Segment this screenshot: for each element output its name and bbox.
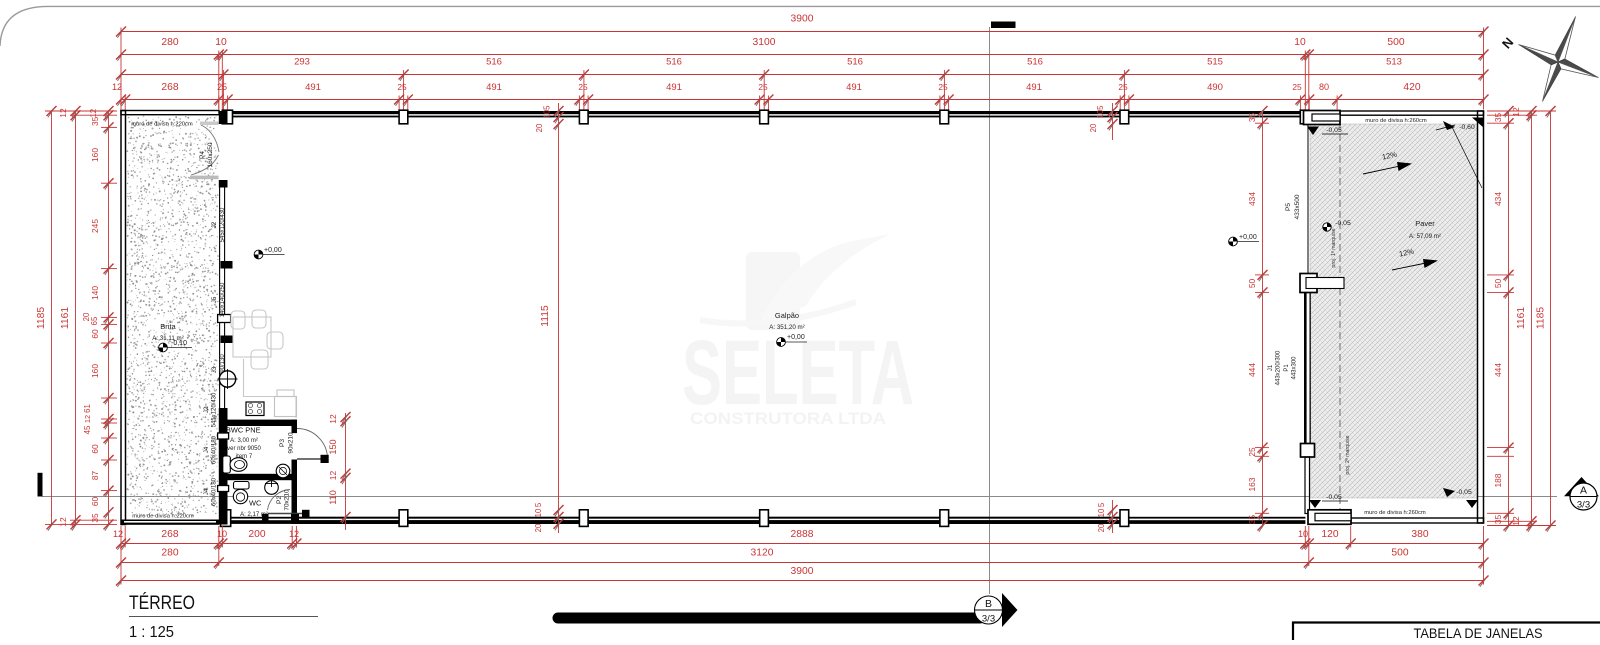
- svg-text:516: 516: [847, 57, 863, 68]
- svg-text:Paver: Paver: [1415, 219, 1435, 228]
- svg-text:60x40/180: 60x40/180: [212, 435, 218, 464]
- svg-text:420: 420: [1403, 82, 1420, 93]
- svg-text:Brita: Brita: [160, 322, 176, 331]
- svg-text:25: 25: [1292, 82, 1302, 92]
- svg-text:60: 60: [90, 329, 100, 339]
- svg-text:20: 20: [1097, 523, 1106, 532]
- svg-text:160: 160: [90, 364, 100, 378]
- svg-text:160: 160: [90, 148, 100, 162]
- svg-text:WC: WC: [249, 499, 262, 508]
- svg-text:87: 87: [90, 471, 100, 481]
- svg-text:1115: 1115: [540, 305, 551, 327]
- svg-text:280: 280: [161, 37, 178, 48]
- svg-text:433x500: 433x500: [1294, 194, 1301, 219]
- svg-text:10: 10: [1097, 508, 1106, 517]
- svg-text:200: 200: [248, 529, 265, 540]
- svg-text:P1: P1: [1284, 364, 1290, 372]
- svg-text:65: 65: [90, 316, 99, 325]
- svg-text:163: 163: [1247, 477, 1257, 491]
- svg-text:TÉRREO: TÉRREO: [129, 593, 195, 614]
- svg-text:muro de divisa h:260cm: muro de divisa h:260cm: [1365, 118, 1427, 124]
- svg-text:90x210: 90x210: [288, 432, 295, 454]
- svg-text:12: 12: [328, 414, 338, 424]
- svg-text:140: 140: [90, 286, 100, 300]
- svg-text:A: 351,20 m²: A: 351,20 m²: [769, 324, 804, 331]
- svg-text:516: 516: [666, 57, 682, 68]
- svg-text:A: 3,00 m²: A: 3,00 m²: [230, 438, 258, 444]
- svg-text:515: 515: [1207, 57, 1223, 68]
- svg-text:3900: 3900: [791, 566, 814, 577]
- svg-text:10: 10: [1294, 37, 1306, 48]
- svg-text:491: 491: [305, 82, 321, 93]
- svg-text:80: 80: [1319, 82, 1329, 92]
- svg-text:35: 35: [1247, 113, 1257, 123]
- svg-text:434: 434: [1493, 192, 1503, 206]
- svg-text:25: 25: [758, 82, 768, 92]
- svg-text:500: 500: [1391, 548, 1408, 559]
- svg-text:12: 12: [113, 529, 123, 539]
- svg-text:25: 25: [1247, 447, 1257, 457]
- svg-text:500: 500: [1387, 37, 1404, 48]
- svg-text:12: 12: [58, 517, 68, 527]
- svg-text:A: 57,09 m²: A: 57,09 m²: [1409, 233, 1441, 240]
- svg-text:1161: 1161: [1516, 307, 1527, 329]
- svg-text:J2: J2: [212, 221, 218, 228]
- svg-text:-0,05: -0,05: [1326, 127, 1342, 134]
- svg-text:CONSTRUTORA LTDA: CONSTRUTORA LTDA: [690, 409, 886, 428]
- svg-text:61: 61: [83, 404, 92, 413]
- svg-text:35: 35: [1493, 113, 1503, 123]
- svg-text:491: 491: [846, 82, 862, 93]
- svg-text:ver nbr 9050: ver nbr 9050: [227, 446, 261, 452]
- svg-text:490: 490: [1207, 82, 1223, 93]
- svg-text:1185: 1185: [36, 307, 47, 329]
- svg-text:45: 45: [83, 425, 92, 434]
- svg-text:3120: 3120: [751, 548, 774, 559]
- svg-text:A: A: [1580, 485, 1587, 497]
- svg-text:60x40/180: 60x40/180: [212, 477, 218, 506]
- svg-text:50: 50: [1493, 279, 1503, 289]
- svg-text:35: 35: [1493, 515, 1503, 525]
- svg-text:268: 268: [161, 529, 178, 540]
- svg-text:35: 35: [90, 116, 100, 126]
- svg-text:491: 491: [1026, 82, 1042, 93]
- svg-text:12: 12: [289, 529, 299, 539]
- svg-text:+0,00: +0,00: [787, 334, 805, 341]
- svg-text:380: 380: [1411, 529, 1428, 540]
- svg-text:140x140/250: 140x140/250: [220, 282, 226, 317]
- svg-text:50: 50: [1247, 279, 1257, 289]
- svg-text:25: 25: [397, 82, 407, 92]
- svg-text:2888: 2888: [791, 529, 814, 540]
- svg-text:443x200/300: 443x200/300: [1276, 350, 1282, 385]
- svg-text:P4: P4: [199, 151, 206, 159]
- svg-text:20: 20: [534, 523, 543, 532]
- svg-text:35: 35: [90, 513, 100, 523]
- svg-text:Galpão: Galpão: [775, 311, 799, 320]
- svg-text:J2: J2: [204, 406, 210, 413]
- svg-text:1185: 1185: [1536, 307, 1547, 329]
- svg-text:P2: P2: [276, 496, 283, 504]
- svg-text:491: 491: [666, 82, 682, 93]
- svg-text:P5: P5: [1285, 203, 1292, 211]
- svg-text:70x210: 70x210: [284, 489, 291, 511]
- svg-text:3/3: 3/3: [1577, 500, 1590, 511]
- svg-text:1161: 1161: [60, 307, 71, 329]
- svg-text:muro de divisa h:220cm: muro de divisa h:220cm: [131, 122, 193, 128]
- svg-text:3900: 3900: [791, 14, 814, 25]
- svg-text:120: 120: [1321, 529, 1338, 540]
- svg-text:J1: J1: [1268, 364, 1274, 371]
- svg-text:245: 245: [90, 219, 100, 233]
- svg-text:12: 12: [112, 82, 122, 92]
- svg-text:105: 105: [1096, 105, 1105, 119]
- svg-text:443x300: 443x300: [1292, 356, 1298, 380]
- svg-text:10: 10: [534, 508, 543, 517]
- svg-text:TABELA DE JANELAS: TABELA DE JANELAS: [1414, 626, 1543, 640]
- svg-text:10: 10: [215, 37, 227, 48]
- svg-text:12: 12: [89, 109, 98, 118]
- svg-text:434: 434: [1247, 192, 1257, 206]
- svg-text:muro de divisa h:220cm: muro de divisa h:220cm: [132, 514, 194, 520]
- svg-text:150: 150: [328, 439, 338, 454]
- svg-text:444: 444: [1247, 363, 1257, 377]
- svg-text:25: 25: [938, 82, 948, 92]
- svg-text:proj. 1ª marquise: proj. 1ª marquise: [1331, 228, 1337, 267]
- svg-text:J3: J3: [212, 366, 218, 373]
- svg-text:3/3: 3/3: [982, 614, 995, 625]
- svg-text:60: 60: [90, 497, 100, 507]
- svg-text:-0,05: -0,05: [1326, 494, 1342, 501]
- svg-text:12: 12: [328, 471, 338, 481]
- svg-text:293: 293: [294, 57, 310, 68]
- svg-text:545x120/430: 545x120/430: [212, 392, 218, 427]
- svg-text:P3: P3: [279, 439, 286, 447]
- svg-text:516: 516: [1027, 57, 1043, 68]
- svg-text:10: 10: [1298, 529, 1308, 539]
- svg-text:513: 513: [1386, 57, 1402, 68]
- svg-text:110: 110: [328, 490, 338, 505]
- svg-text:516: 516: [486, 57, 502, 68]
- svg-text:444: 444: [1493, 363, 1503, 377]
- svg-text:BWC PNE: BWC PNE: [226, 426, 261, 435]
- svg-text:160x250: 160x250: [207, 142, 214, 167]
- svg-text:5: 5: [1097, 502, 1106, 507]
- svg-text:25: 25: [1118, 82, 1128, 92]
- svg-text:5: 5: [534, 502, 543, 507]
- svg-text:545x120/430: 545x120/430: [220, 207, 226, 242]
- svg-text:491: 491: [486, 82, 502, 93]
- svg-text:muro de divisa h:260cm: muro de divisa h:260cm: [1364, 510, 1426, 516]
- svg-text:B: B: [985, 598, 992, 610]
- svg-text:1 : 125: 1 : 125: [129, 624, 174, 640]
- svg-text:35: 35: [1247, 515, 1257, 525]
- svg-text:+0,00: +0,00: [1239, 234, 1257, 241]
- svg-text:268: 268: [161, 82, 178, 93]
- svg-text:280: 280: [161, 548, 178, 559]
- svg-text:-0,60: -0,60: [1459, 124, 1475, 131]
- svg-text:+0,00: +0,00: [264, 247, 282, 254]
- svg-text:60: 60: [90, 444, 100, 454]
- svg-text:-0,05: -0,05: [1335, 220, 1351, 227]
- svg-text:12: 12: [58, 108, 68, 118]
- svg-text:25: 25: [578, 82, 588, 92]
- svg-text:20: 20: [1089, 123, 1098, 132]
- svg-text:J5: J5: [212, 296, 218, 303]
- svg-text:20: 20: [535, 123, 544, 132]
- svg-text:105: 105: [543, 105, 552, 119]
- svg-text:3100: 3100: [753, 37, 776, 48]
- svg-text:12: 12: [83, 415, 92, 423]
- svg-text:-0,10: -0,10: [171, 340, 187, 347]
- svg-text:J4: J4: [204, 446, 210, 453]
- svg-text:J4: J4: [204, 488, 210, 495]
- svg-text:-0,05: -0,05: [1456, 489, 1472, 496]
- svg-text:proj. 2ª marquise: proj. 2ª marquise: [1345, 435, 1351, 474]
- svg-text:188: 188: [1493, 473, 1503, 487]
